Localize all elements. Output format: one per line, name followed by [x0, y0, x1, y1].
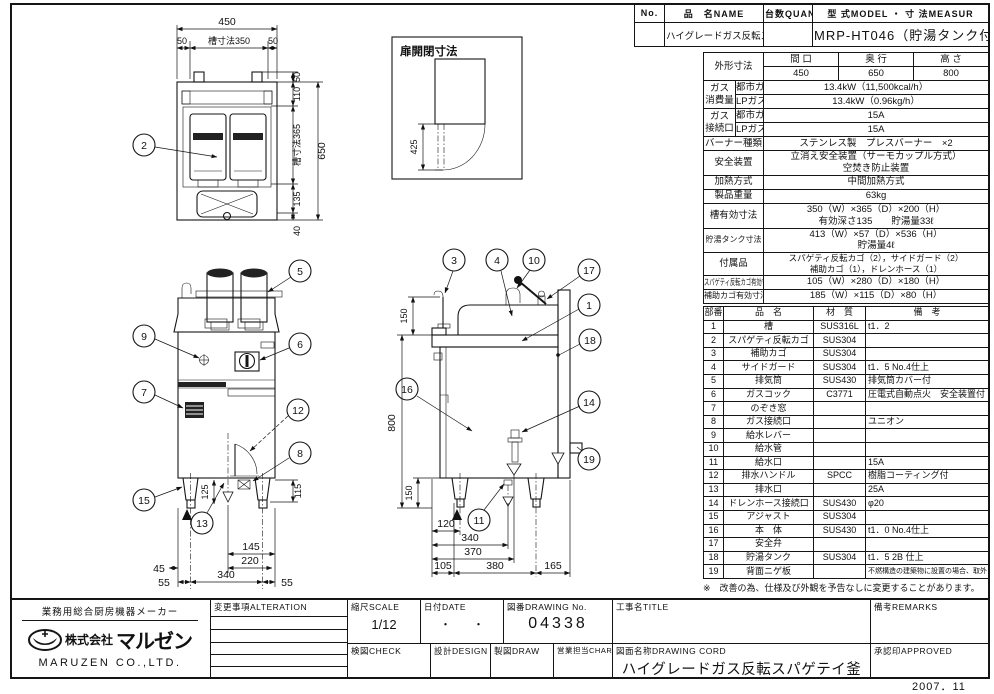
- outer-dim-label: 外形寸法: [704, 53, 764, 81]
- company-name-en: MARUZEN CO.,LTD.: [10, 657, 210, 669]
- dim-label: 800: [386, 414, 398, 432]
- dim-label: 450: [218, 16, 236, 28]
- title-header-table: No. 品 名NAME 台数QUANTITY 型 式MODEL ・ 寸 法MEA…: [634, 3, 989, 47]
- model-label: 型 式MODEL ・ 寸 法MEASUR: [813, 4, 989, 23]
- callout-7: 7: [141, 387, 147, 399]
- qty-value: [764, 23, 813, 47]
- dim-label: 40: [292, 226, 302, 236]
- alteration-label: 変更事項ALTERATION: [211, 600, 347, 613]
- accessories-value: スパゲティ反転カゴ（2），サイドガード（2）補助カゴ（1），ドレンホース（1）: [764, 253, 989, 275]
- dim-label: 380: [486, 560, 504, 572]
- parts-row: 10給水管: [704, 442, 989, 456]
- weight-value: 63kg: [764, 189, 989, 203]
- hot-tank-value: 413（W）×57（D）×536（H）貯湯量4ℓ: [764, 228, 989, 253]
- safety-value: 立消え安全装置（サーモカップル方式）空焚き防止装置: [764, 151, 989, 176]
- door-panel: [435, 59, 485, 124]
- approved-label: 承認印APPROVED: [871, 644, 988, 657]
- charge-label: 営業担当CHARGE: [554, 644, 612, 656]
- parts-table-body: 1槽SUS316Lt1．22スパゲティ反転カゴSUS3043補助カゴSUS304…: [704, 320, 989, 578]
- callout-12: 12: [292, 405, 304, 417]
- parts-row: 4サイドガードSUS304t1．5 No.4仕上: [704, 361, 989, 375]
- dim-label: 340: [461, 532, 479, 544]
- dim-label: 220: [241, 555, 259, 567]
- drawing-name-cell: 図面名称DRAWING CORD ハイグレードガス反転スパゲテイ釜: [612, 643, 870, 679]
- alteration-column: 変更事項ALTERATION: [210, 600, 347, 679]
- callout-15: 15: [138, 495, 150, 507]
- project-title-label: 工事名TITLE: [613, 600, 870, 613]
- door-swing-arc: [443, 124, 485, 170]
- callout-9: 9: [141, 331, 147, 343]
- design-label: 設計DESIGN: [431, 644, 490, 657]
- tank-dim-value: 350（W）×365（D）×200（H）有効深さ135 貯湯量33ℓ: [764, 203, 989, 228]
- callout-1: 1: [586, 300, 592, 312]
- scale-value: 1/12: [348, 613, 420, 635]
- dim-label: 370: [464, 546, 482, 558]
- safety-label: 安全装置: [704, 151, 764, 176]
- callout-19: 19: [583, 454, 595, 466]
- dim-label: 340: [217, 569, 235, 581]
- gas-consumption-label: ガス消費量: [704, 81, 736, 109]
- dim-label: 120: [437, 518, 455, 530]
- parts-row: 13排水口25A: [704, 483, 989, 497]
- basket-dim-value: 105（W）×280（D）×180（H）: [764, 275, 989, 289]
- draw-cell: 製図DRAW: [490, 643, 553, 679]
- height-label: 高 さ: [914, 53, 989, 67]
- side-view: 3 4 10 17 1 18 16 14 19 11 150 800 150: [386, 249, 601, 577]
- sub-basket-dim-value: 185（W）×115（D）×80（H）: [764, 289, 989, 303]
- design-cell: 設計DESIGN: [430, 643, 490, 679]
- remarks-cell: 備考REMARKS: [870, 600, 988, 643]
- parts-row: 7のぞき窓: [704, 402, 989, 416]
- date-value: ・ ・: [421, 613, 503, 635]
- drawing-name-label: 図面名称DRAWING CORD: [613, 644, 870, 657]
- dim-label: 55: [281, 577, 293, 589]
- parts-row: 1槽SUS316Lt1．2: [704, 320, 989, 334]
- counter-top: [432, 335, 558, 347]
- depth-label: 奥 行: [839, 53, 914, 67]
- dim-label: 165: [544, 560, 562, 572]
- project-title-cell: 工事名TITLE: [612, 600, 870, 643]
- no-value: [635, 23, 665, 47]
- drawing-views: 450 50 槽寸法350 50 50 110 槽寸法365 135 40 65…: [10, 3, 632, 598]
- burner-value: ステンレス製 プレスバーナー ×2: [764, 137, 989, 151]
- approved-cell: 承認印APPROVED: [870, 643, 988, 679]
- dim-label: 135: [292, 191, 302, 206]
- parts-row: 16本 体SUS430t1．0 No.4仕上: [704, 524, 989, 538]
- qty-label: 台数QUANTITY: [764, 4, 813, 23]
- drain-hose-connection: [511, 430, 519, 438]
- parts-col-no: 部番: [704, 307, 724, 321]
- city-conn-label: 都市ガス: [736, 109, 764, 123]
- basket-cover: [458, 305, 558, 335]
- callout-5: 5: [297, 266, 303, 278]
- dim-label: 50: [292, 72, 302, 82]
- dim-label: 150: [399, 308, 409, 323]
- dim-label: 425: [409, 139, 419, 154]
- dim-label: 650: [316, 142, 328, 160]
- remarks-label: 備考REMARKS: [871, 600, 988, 613]
- company-name-jp: マルゼン: [116, 625, 192, 654]
- dim-label: 115: [293, 484, 303, 498]
- basket-lever: [520, 282, 546, 304]
- parts-row: 5排気筒SUS430排気筒カバー付: [704, 374, 989, 388]
- callout-18: 18: [584, 335, 596, 347]
- scale-cell: 縮尺SCALE 1/12: [347, 600, 420, 643]
- maruzen-logo-icon: [28, 629, 62, 651]
- parts-row: 17安全弁: [704, 538, 989, 552]
- parts-row: 6ガスコックC3771圧電式自動点火 安全装置付: [704, 388, 989, 402]
- name-label: 品 名NAME: [665, 4, 764, 23]
- parts-row: 18貯湯タンクSUS304t1．5 2B 仕上: [704, 551, 989, 565]
- callout-14: 14: [583, 397, 595, 409]
- callout-11: 11: [474, 515, 485, 527]
- change-notice: ※ 改善の為、仕様及び外観を予告なしに変更することがあります。: [703, 581, 991, 594]
- callout-13: 13: [196, 518, 208, 530]
- parts-col-name: 品 名: [724, 307, 814, 321]
- width-label: 間 口: [764, 53, 839, 67]
- callout-16: 16: [401, 384, 413, 396]
- dim-label: 槽寸法350: [208, 35, 250, 46]
- hot-tank-label: 貯湯タンク寸法: [704, 228, 764, 253]
- parts-col-material: 材 質: [814, 307, 866, 321]
- company-block: 業務用総合厨房機器メーカー 株式会社 マルゼン MARUZEN CO.,LTD.: [10, 600, 210, 679]
- drawing-no-label: 図番DRAWING No.: [504, 600, 612, 613]
- gas-connection-label: ガス接続口: [704, 109, 736, 137]
- lp-gas-label: LPガス: [736, 95, 764, 109]
- dim-label: 105: [434, 560, 452, 572]
- plan-view: 450 50 槽寸法350 50 50 110 槽寸法365 135 40 65…: [133, 16, 328, 236]
- city-conn-value: 15A: [764, 109, 989, 123]
- heating-value: 中間加熱方式: [764, 175, 989, 189]
- callout-6: 6: [297, 339, 303, 351]
- burner-label: バーナー種類: [704, 137, 764, 151]
- callout-17: 17: [583, 265, 595, 277]
- parts-table: 部番 品 名 材 質 備 考 1槽SUS316Lt1．22スパゲティ反転カゴSU…: [703, 306, 989, 579]
- draw-label: 製図DRAW: [491, 644, 553, 657]
- depth-value: 650: [839, 67, 914, 81]
- callout-10: 10: [528, 255, 540, 267]
- weight-label: 製品重量: [704, 189, 764, 203]
- dim-label: 125: [200, 484, 210, 499]
- company-prefix: 株式会社: [65, 631, 113, 648]
- parts-row: 3補助カゴSUS304: [704, 347, 989, 361]
- dim-label: 50: [177, 36, 187, 46]
- tank-dim-label: 槽有効寸法: [704, 203, 764, 228]
- accessories-label: 付属品: [704, 253, 764, 275]
- dim-label: 150: [404, 485, 414, 500]
- dim-label: 45: [153, 563, 165, 575]
- lp-conn-value: 15A: [764, 123, 989, 137]
- parts-row: 9給水レバー: [704, 429, 989, 443]
- callout-2: 2: [141, 140, 147, 152]
- rear-panel: [558, 290, 570, 478]
- drawing-no-cell: 図番DRAWING No. 04338: [503, 600, 612, 643]
- parts-row: 12排水ハンドルSPCC樹脂コーティング付: [704, 470, 989, 484]
- parts-row: 11給水口15A: [704, 456, 989, 470]
- dim-label: 145: [242, 541, 260, 553]
- height-value: 800: [914, 67, 989, 81]
- dim-label: 110: [292, 87, 302, 101]
- parts-row: 14ドレンホース接続口SUS430φ20: [704, 497, 989, 511]
- basket-dim-label: スパゲティ反転カゴ有効寸法: [704, 275, 764, 289]
- spec-table: 外形寸法 間 口 奥 行 高 さ 450 650 800 ガス消費量 都市ガス …: [703, 52, 989, 304]
- drawing-sheet: { "header": { "no_label": "No.", "name_l…: [0, 0, 994, 692]
- body-side: [440, 347, 558, 478]
- parts-row: 2スパゲティ反転カゴSUS304: [704, 334, 989, 348]
- exhaust-hatch: [182, 91, 272, 104]
- callout-3: 3: [451, 255, 457, 267]
- parts-header-row: 部番 品 名 材 質 備 考: [704, 307, 989, 321]
- parts-row: 8ガス接続口ユニオン: [704, 415, 989, 429]
- title-block: 業務用総合厨房機器メーカー 株式会社 マルゼン MARUZEN CO.,LTD.…: [10, 598, 988, 679]
- city-gas-value: 13.4kW（11,500kcal/h）: [764, 81, 989, 95]
- check-label: 検図CHECK: [348, 644, 430, 657]
- front-view: 5 9 6 7 12 8 15 13 125 115 145 45 220 55…: [133, 260, 311, 589]
- model-number: MRP-HT046（貯湯タンク付）: [813, 23, 989, 47]
- check-cell: 検図CHECK: [347, 643, 430, 679]
- lp-conn-label: LPガス: [736, 123, 764, 137]
- dim-label: 槽寸法365: [291, 124, 302, 166]
- door-swing-detail: 扉開閉寸法 425: [392, 37, 522, 179]
- date-label: 日付DATE: [421, 600, 503, 613]
- basket-left: [190, 114, 226, 180]
- lp-gas-value: 13.4kW（0.96kg/h）: [764, 95, 989, 109]
- parts-row: 15アジャストSUS304: [704, 510, 989, 524]
- parts-col-remarks: 備 考: [866, 307, 989, 321]
- water-pipe: [506, 288, 520, 305]
- scale-label: 縮尺SCALE: [348, 600, 420, 613]
- heating-label: 加熱方式: [704, 175, 764, 189]
- drawing-name-value: ハイグレードガス反転スパゲテイ釜: [613, 658, 870, 679]
- product-name: ハイグレードガス反転スパゲティ釜: [665, 23, 764, 47]
- water-inlet: [504, 480, 512, 485]
- drawing-no-value: 04338: [504, 613, 612, 635]
- charge-cell: 営業担当CHARGE: [553, 643, 612, 679]
- rear-plate: [570, 443, 582, 453]
- callout-4: 4: [494, 255, 500, 267]
- city-gas-label: 都市ガス: [736, 81, 764, 95]
- date-cell: 日付DATE ・ ・: [420, 600, 503, 643]
- parts-row: 19背面ニゲ板不燃構造の建築物に設置の場合、取外し可: [704, 565, 989, 579]
- callout-8: 8: [297, 448, 303, 460]
- width-value: 450: [764, 67, 839, 81]
- company-tagline: 業務用総合厨房機器メーカー: [22, 604, 198, 621]
- door-detail-title: 扉開閉寸法: [400, 44, 458, 58]
- dim-label: 55: [158, 577, 170, 589]
- sub-basket-dim-label: 補助カゴ有効寸法: [704, 289, 764, 303]
- basket-right: [230, 114, 266, 180]
- dim-label: 50: [268, 36, 278, 46]
- no-label: No.: [635, 4, 665, 23]
